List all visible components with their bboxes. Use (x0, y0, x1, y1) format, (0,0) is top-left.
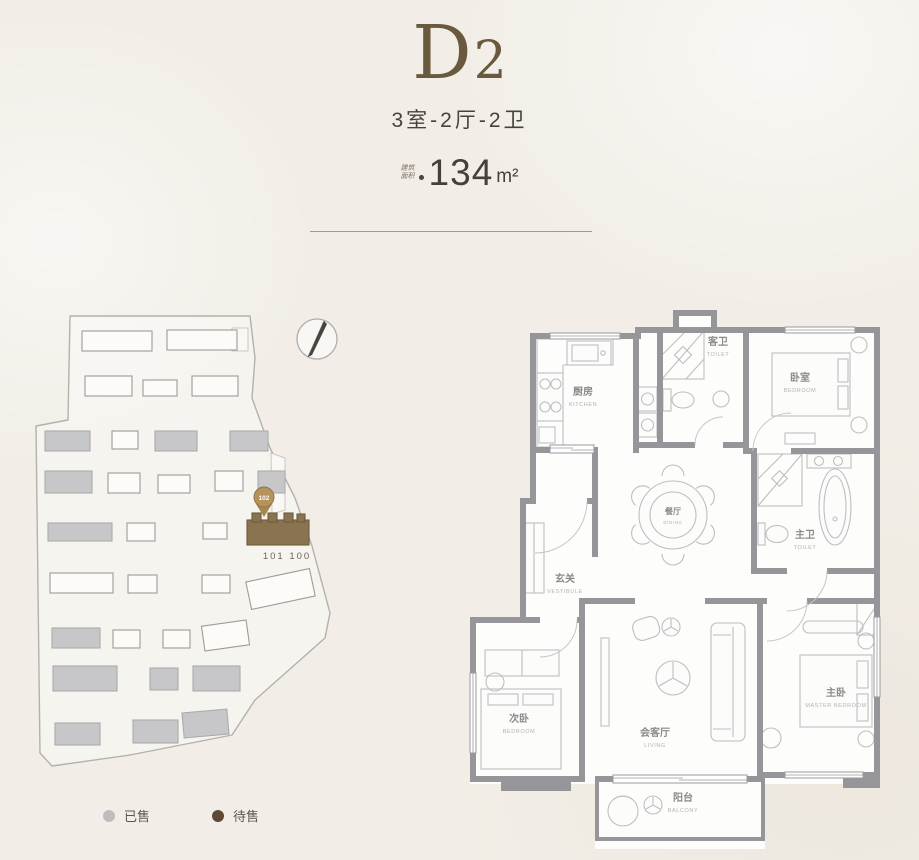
site-building-forsale (85, 376, 132, 396)
legend: 已售 待售 (103, 806, 259, 825)
site-building-sold (48, 523, 112, 541)
site-building-forsale (163, 630, 190, 648)
unit-layout: 3室-2厅-2卫 (0, 104, 919, 134)
compass-icon (292, 314, 344, 366)
window (874, 617, 880, 697)
unit-name-sub: 2 (474, 31, 507, 91)
sliding-door (613, 775, 747, 783)
second-bedroom-furniture (481, 650, 561, 769)
site-building-forsale (108, 473, 140, 493)
site-building-forsale (127, 523, 155, 541)
site-building-sold (45, 471, 92, 493)
legend-sold-label: 已售 (124, 806, 150, 825)
svg-text:BALCONY: BALCONY (668, 808, 699, 814)
pin-label: 102 (259, 495, 270, 502)
sofa (711, 623, 745, 741)
room-label-kitchen: 厨房 (573, 385, 593, 398)
site-building-sold (52, 628, 100, 648)
site-building-forsale (128, 575, 157, 593)
floor-plan: 厨房 KITCHEN 客卫 TOILET 卧室 BEDROOM 玄关 VESTI… (455, 283, 910, 858)
site-building-forsale (203, 523, 227, 539)
window (785, 772, 863, 778)
area-unit: m² (496, 166, 518, 188)
site-building-forsale (192, 376, 238, 396)
svg-text:VESTIBULE: VESTIBULE (547, 589, 583, 595)
area-value: 134 (429, 152, 494, 194)
bathtub (819, 469, 851, 545)
header-divider (310, 231, 592, 232)
balcony-table (644, 796, 662, 814)
site-building-sold (150, 668, 178, 690)
site-building-highlight (247, 520, 309, 545)
sold-dot-icon (103, 810, 115, 822)
vanity (807, 454, 851, 468)
svg-text:BEDROOM: BEDROOM (784, 388, 817, 394)
room-label-master-toilet: 主卫 (795, 528, 815, 541)
area-dot-icon (419, 175, 424, 180)
room-label-vestibule: 玄关 (555, 572, 575, 585)
legend-forsale-label: 待售 (233, 806, 259, 825)
site-building-sold (230, 431, 268, 451)
site-building-sold (193, 666, 240, 691)
unit-area: 建筑 面积 134 m² (0, 152, 919, 194)
site-building-sold (55, 723, 100, 745)
room-label-guest-toilet: 客卫 (707, 335, 728, 348)
site-building-sold (45, 431, 90, 451)
window (470, 673, 476, 753)
svg-text:DINING: DINING (663, 520, 682, 525)
svg-text:BEDROOM: BEDROOM (503, 729, 536, 735)
site-building-forsale (50, 573, 113, 593)
svg-text:KITCHEN: KITCHEN (569, 402, 597, 408)
lounge-chair (608, 796, 638, 826)
room-label-second-bedroom: 次卧 (509, 712, 529, 725)
unit-title: D2 (0, 16, 919, 90)
svg-text:TOILET: TOILET (707, 352, 730, 358)
site-building-sold (155, 431, 197, 451)
sliding-door (550, 445, 594, 453)
site-building-sold (53, 666, 117, 691)
room-label-dining: 餐厅 (664, 506, 681, 516)
site-building-forsale (167, 330, 237, 350)
site-building-forsale (202, 575, 230, 593)
legend-item-sold: 已售 (103, 806, 150, 825)
svg-text:LIVING: LIVING (644, 743, 666, 749)
side-stool (662, 618, 680, 636)
coffee-table (656, 661, 690, 695)
bench (803, 621, 863, 633)
site-building-forsale (215, 471, 243, 491)
building-area-label: 建筑 面积 (401, 165, 415, 181)
site-building-forsale (143, 380, 177, 396)
room-label-master-bedroom: 主卧 (826, 686, 846, 699)
window (550, 333, 620, 339)
vestibule-furniture (524, 523, 544, 593)
room-label-bedroom: 卧室 (790, 371, 810, 384)
site-plan: 102 101 100 (25, 303, 335, 803)
svg-text:TOILET: TOILET (794, 545, 817, 551)
forsale-dot-icon (212, 810, 224, 822)
unit-name: D (412, 10, 473, 96)
site-building-sold (182, 709, 229, 738)
room-label-balcony: 阳台 (673, 791, 693, 804)
room-label-living: 会客厅 (640, 726, 670, 739)
site-building-forsale (158, 475, 190, 493)
wardrobe (485, 650, 559, 676)
site-building-forsale (113, 630, 140, 648)
floorplan-page: D2 3室-2厅-2卫 建筑 面积 134 m² 102 101 (0, 0, 919, 860)
window (785, 327, 855, 333)
plan-header: D2 3室-2厅-2卫 建筑 面积 134 m² (0, 0, 919, 194)
unit-numbers: 101 100 (263, 551, 311, 562)
legend-item-forsale: 待售 (212, 806, 259, 825)
site-building-forsale (112, 431, 138, 449)
site-building-forsale (82, 331, 152, 351)
svg-text:MASTER BEDROOM: MASTER BEDROOM (805, 703, 866, 709)
site-building-sold (133, 720, 178, 743)
